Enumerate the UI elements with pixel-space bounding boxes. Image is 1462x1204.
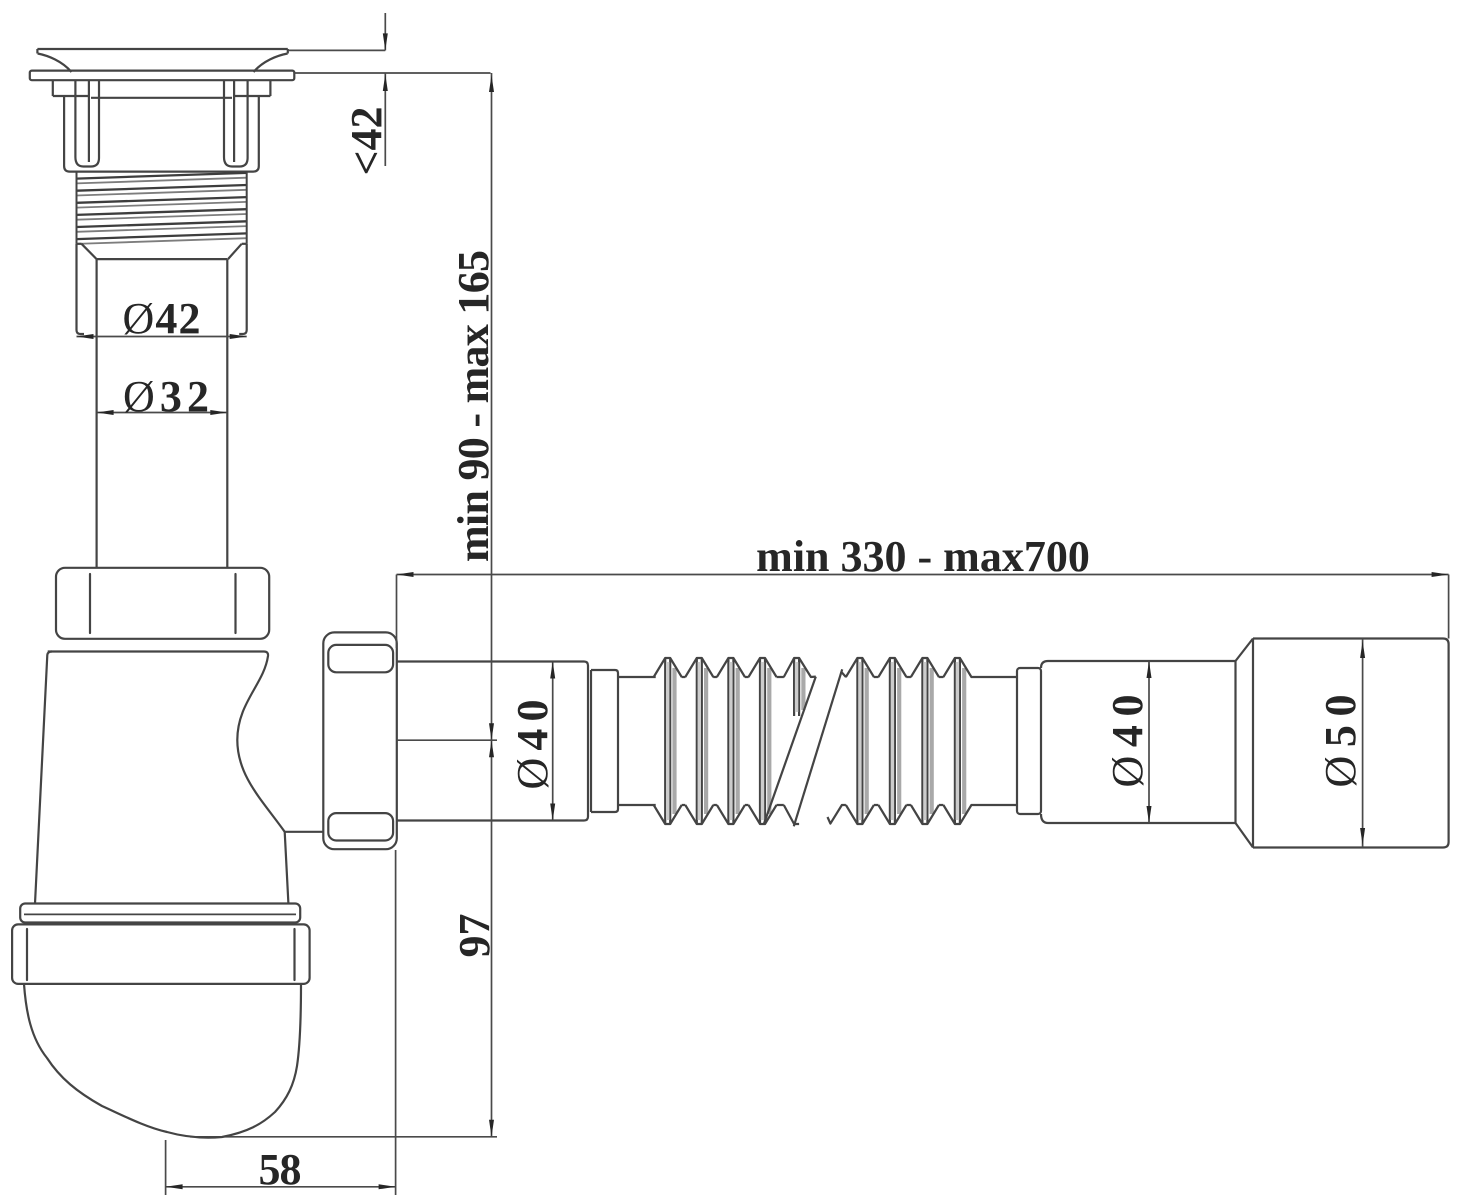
svg-text:min 330 - max700: min 330 - max700	[756, 532, 1090, 581]
svg-text:min 90 - max 165: min 90 - max 165	[449, 250, 498, 562]
svg-text:<42: <42	[342, 106, 391, 175]
svg-text:Ø40: Ø40	[508, 700, 557, 790]
svg-text:Ø42: Ø42	[123, 294, 201, 343]
svg-text:Ø40: Ø40	[1103, 695, 1152, 788]
svg-text:Ø50: Ø50	[1316, 695, 1365, 788]
svg-text:58: 58	[259, 1145, 302, 1194]
svg-text:97: 97	[450, 914, 499, 958]
svg-text:Ø32: Ø32	[123, 372, 209, 421]
